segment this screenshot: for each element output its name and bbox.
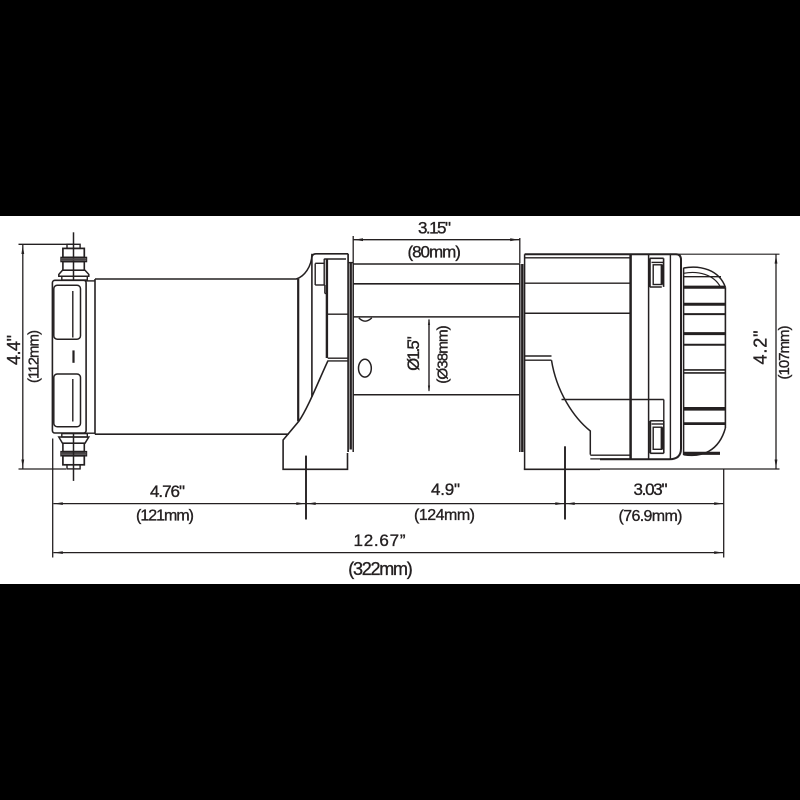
svg-text:4.9": 4.9" <box>431 480 460 499</box>
svg-text:(112mm): (112mm) <box>25 330 42 383</box>
svg-text:(121mm): (121mm) <box>136 508 194 525</box>
svg-text:(80mm): (80mm) <box>407 242 461 261</box>
svg-text:Ø1.5": Ø1.5" <box>405 336 423 371</box>
svg-text:4.4": 4.4" <box>4 335 24 365</box>
svg-text:3.03": 3.03" <box>634 480 668 499</box>
svg-text:4.2": 4.2" <box>751 331 771 365</box>
svg-text:12.67”: 12.67” <box>354 531 406 550</box>
svg-text:(76.9mm): (76.9mm) <box>619 508 683 525</box>
svg-text:(322mm): (322mm) <box>348 559 413 579</box>
svg-text:(107mm): (107mm) <box>776 326 793 380</box>
svg-text:3.15": 3.15" <box>418 219 451 238</box>
svg-text:(124mm): (124mm) <box>414 507 475 524</box>
svg-text:4.76": 4.76" <box>150 482 185 501</box>
svg-text:(Ø38mm): (Ø38mm) <box>434 325 451 384</box>
